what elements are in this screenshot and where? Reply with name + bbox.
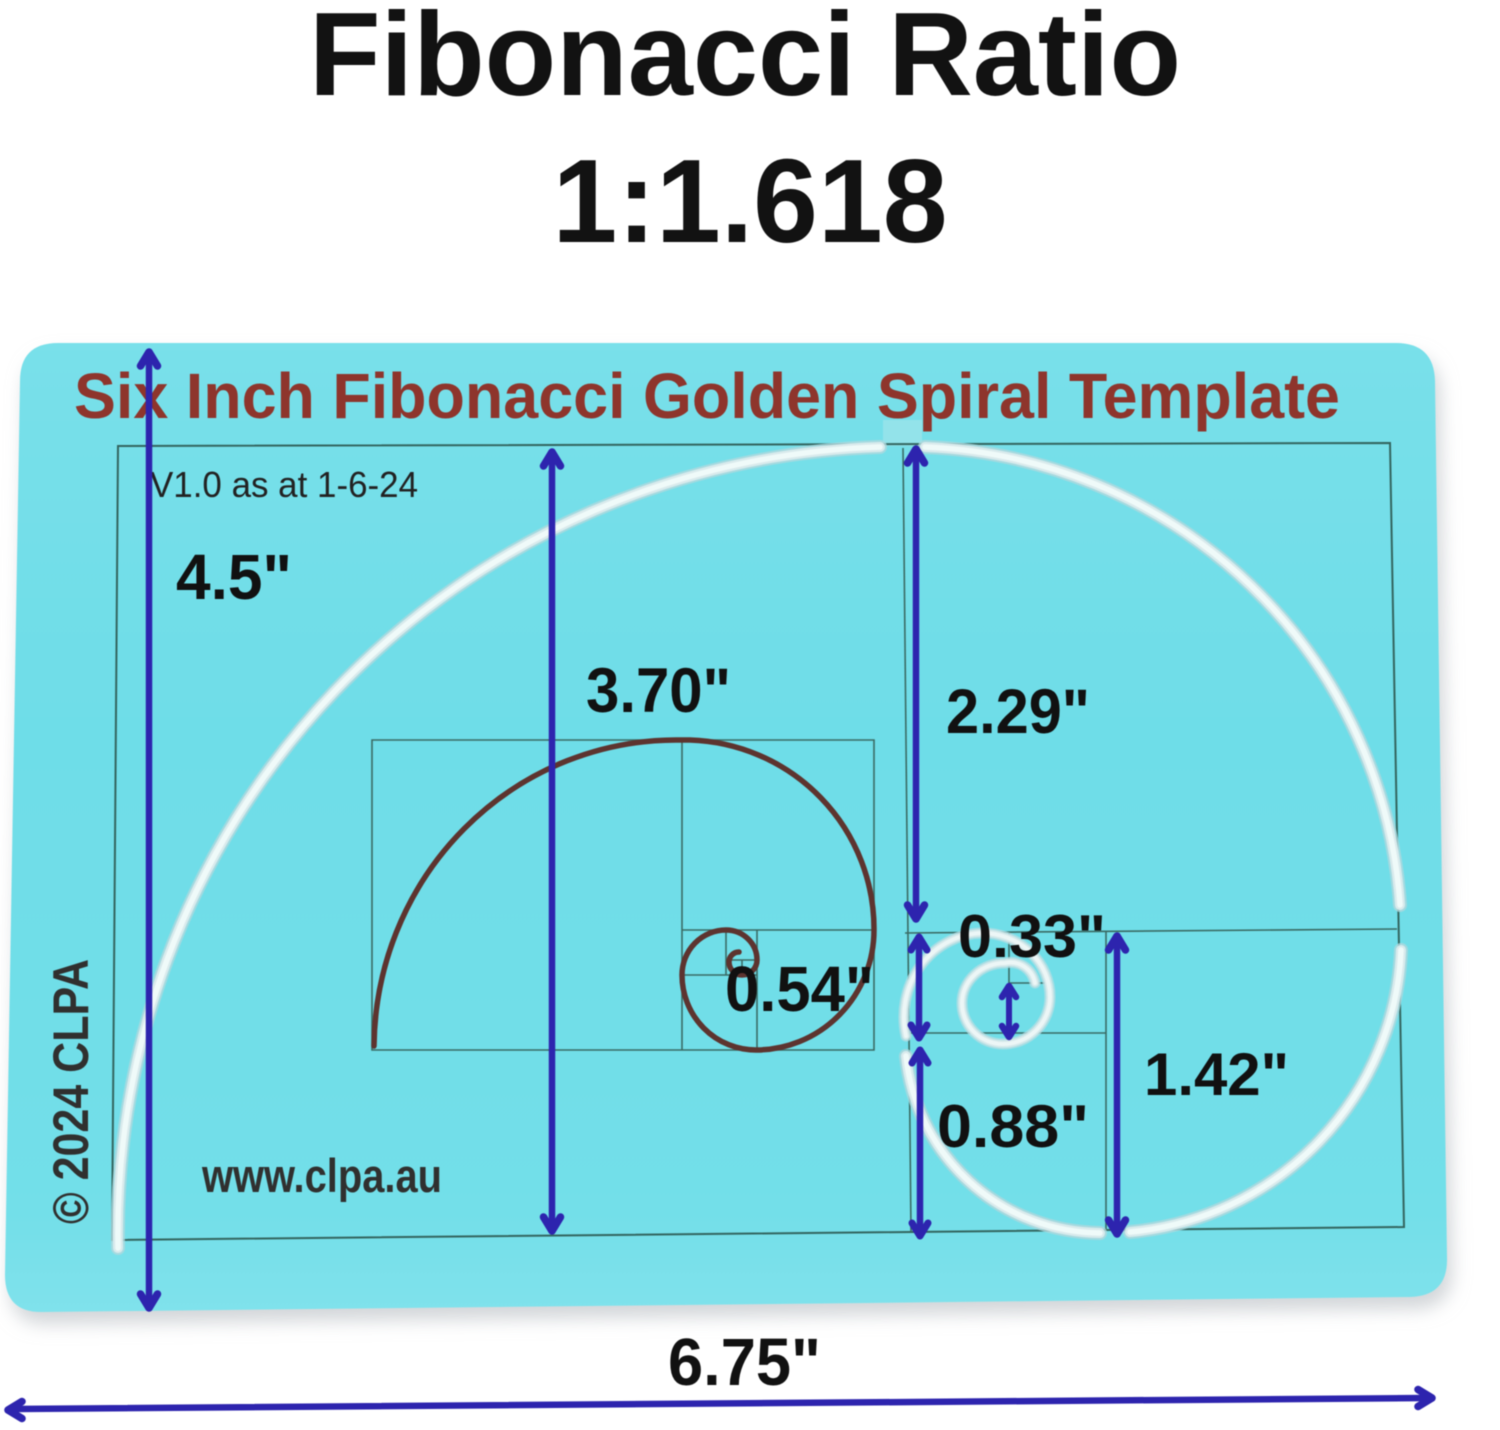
svg-text:Six Inch Fibonacci Golden Spir: Six Inch Fibonacci Golden Spiral Templat… bbox=[74, 360, 1340, 432]
svg-text:0.33": 0.33" bbox=[958, 903, 1106, 970]
svg-text:3.70": 3.70" bbox=[586, 656, 731, 726]
svg-text:V1.0 as at 1-6-24: V1.0 as at 1-6-24 bbox=[150, 464, 418, 505]
svg-text:www.clpa.au: www.clpa.au bbox=[201, 1149, 442, 1202]
svg-text:1:1.618: 1:1.618 bbox=[553, 135, 948, 268]
svg-text:1.42": 1.42" bbox=[1144, 1041, 1289, 1108]
svg-text:© 2024 CLPA: © 2024 CLPA bbox=[43, 959, 99, 1224]
svg-text:0.54": 0.54" bbox=[725, 953, 874, 1025]
svg-text:0.88": 0.88" bbox=[937, 1093, 1089, 1160]
svg-text:6.75": 6.75" bbox=[668, 1325, 821, 1400]
svg-text:2.29": 2.29" bbox=[946, 677, 1090, 747]
svg-text:4.5": 4.5" bbox=[176, 541, 292, 613]
svg-text:Fibonacci Ratio: Fibonacci Ratio bbox=[309, 0, 1181, 121]
